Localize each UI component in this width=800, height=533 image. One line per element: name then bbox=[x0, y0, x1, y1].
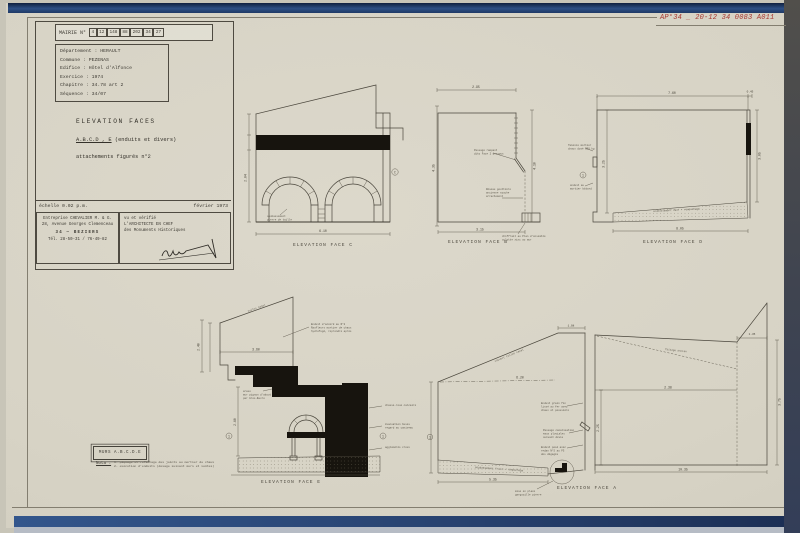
mairie-cell: 202 bbox=[130, 28, 143, 37]
mairie-cell: 27 bbox=[153, 28, 163, 37]
face-e-note: évacuation buses bbox=[385, 422, 410, 426]
nota-label: Nota : bbox=[96, 462, 111, 466]
subject-attachements: attachements figurés n°2 bbox=[76, 154, 226, 160]
face-b-note: Réseau gouttière bbox=[486, 187, 511, 191]
face-d-note: chaux dosé 350 kg bbox=[568, 146, 595, 150]
face-a-slope-note: couvert tuiles canal bbox=[494, 347, 525, 363]
face-e-note: hydrofugé, reprendre après bbox=[311, 329, 352, 333]
face-e-note: chasse-roue calcaire bbox=[385, 403, 417, 407]
contractor-phone: Tél. 28-50-31 / 76-49-82 bbox=[39, 237, 116, 243]
date-label: février 1973 bbox=[193, 204, 228, 209]
sheet-border-bottom bbox=[12, 507, 784, 508]
info-sequence: Séquence : 34/07 bbox=[60, 91, 164, 100]
face-a-bottomleft-dim: 5.35 bbox=[489, 478, 497, 482]
nota-line: 2- exécution d'enduits (dosage suivant m… bbox=[114, 464, 222, 468]
info-departement: Département : HERAULT bbox=[60, 48, 164, 57]
face-e-note: par Gros-Œuvre bbox=[243, 397, 265, 400]
face-e-note: Raufleurs mortier de chaux bbox=[311, 325, 352, 329]
face-b-bottom-dim: 3.15 bbox=[476, 228, 484, 232]
face-e-note: regard au caniveau bbox=[385, 425, 413, 429]
murs-label: MURS A.B.C.D.E bbox=[99, 451, 141, 455]
face-e-left-dim: 2.40 bbox=[197, 343, 201, 351]
face-d-top-dim: 7.60 bbox=[668, 91, 676, 95]
face-a-detail-note: gargouille pierre bbox=[515, 492, 542, 496]
project-info-box: Département : HERAULT Commune : PEZENAS … bbox=[55, 44, 169, 102]
scale-label: échelle 0.02 p.m. bbox=[39, 204, 88, 209]
sheet-border-top bbox=[27, 17, 657, 18]
face-b-geometry bbox=[435, 88, 540, 234]
sheet-border-left bbox=[27, 17, 28, 507]
face-b-note: ancienne souche bbox=[486, 190, 510, 194]
murs-label-box: MURS A.B.C.D.E bbox=[93, 446, 147, 460]
face-c-note: pierre de taille bbox=[267, 217, 292, 221]
face-c-height-dim: 2.04 bbox=[244, 174, 248, 182]
face-b-top-dim: 2.95 bbox=[472, 85, 480, 89]
face-a-detail-note: mise en place bbox=[515, 489, 536, 493]
top-blue-binding-bar bbox=[8, 3, 784, 13]
face-a-geometry bbox=[427, 303, 779, 489]
face-d-geometry bbox=[580, 94, 759, 233]
face-a-note: Passage canalisation bbox=[543, 428, 575, 432]
mairie-cell: 88 bbox=[120, 28, 130, 37]
face-a-note: eaux pluviales bbox=[543, 431, 565, 435]
face-a-note: Enduit posé avec bbox=[541, 445, 566, 449]
face-e-note: mur pignon d'about bbox=[243, 392, 271, 396]
subject-faces: A.B.C.D , E (enduits et divers) bbox=[76, 137, 226, 143]
drawing-subject: ELEVATION FACES A.B.C.D , E (enduits et … bbox=[76, 118, 226, 160]
info-chapitre: Chapitre : 34.78 art 2 bbox=[60, 82, 164, 91]
face-d-note: enduit au bbox=[570, 183, 584, 187]
face-a-wall-dim: 2.25 bbox=[596, 424, 600, 432]
face-b-caption: ELEVATION FACE B bbox=[448, 239, 508, 245]
faces-list: A.B.C.D , E bbox=[76, 137, 112, 143]
face-b-note: arrachement bbox=[486, 194, 504, 198]
face-a-mid-dim: 2.38 bbox=[664, 386, 672, 390]
face-d-circle-mark: 1 bbox=[582, 173, 584, 177]
face-b-note: dito Face 2 dessous bbox=[474, 151, 504, 155]
mairie-number-cells: 4 12 148 88 202 34 27 bbox=[89, 28, 164, 37]
face-e-width-dim: 3.60 bbox=[252, 348, 260, 352]
face-e-note: agglomérés creux bbox=[385, 445, 410, 449]
face-c-note: soubassement bbox=[267, 214, 286, 218]
face-e-wall-dim: 2.60 bbox=[233, 418, 237, 426]
face-e-geometry bbox=[200, 297, 386, 477]
face-a-note: suivant devis bbox=[543, 435, 564, 439]
elevation-face-b-drawing: 2.95 4.35 4.10 3.15 Passage rampant dito… bbox=[430, 80, 570, 255]
subject-title: ELEVATION FACES bbox=[76, 118, 226, 125]
scale-date-row: échelle 0.02 p.m. février 1973 bbox=[36, 200, 231, 212]
face-b-right-dim: 4.10 bbox=[533, 162, 537, 170]
face-a-note: des dégagés bbox=[541, 452, 559, 456]
face-a-flat-dim: 1.08 bbox=[568, 325, 575, 328]
face-d-note: faïence mortier bbox=[568, 143, 592, 147]
info-exercice: Exercice : 1974 bbox=[60, 74, 164, 83]
face-c-caption: ELEVATION FACE C bbox=[293, 242, 353, 248]
face-a-roof-label: faîtage ancien bbox=[665, 347, 688, 353]
contractor-address: 28, Avenue Georges Clemenceau bbox=[39, 222, 116, 228]
face-a-topright-dim: 1.35 bbox=[749, 333, 756, 336]
red-ref-underline bbox=[656, 25, 786, 26]
face-a-circle-mark: 1 bbox=[429, 435, 431, 439]
face-a-right-dim: 3.75 bbox=[778, 398, 782, 406]
face-e-caption: ELEVATION FACE E bbox=[261, 479, 321, 485]
contractor-box: Entreprise CHEVALIER M. & G. 28, Avenue … bbox=[36, 212, 119, 264]
bottom-photo-edge bbox=[14, 527, 800, 533]
face-b-note: chiffrait au Plan d'ensemble bbox=[502, 234, 546, 238]
face-a-caption: ELEVATION FACE A bbox=[557, 485, 617, 491]
face-e-circle-mark-left: 1 bbox=[228, 434, 230, 438]
mairie-cell: 12 bbox=[97, 28, 107, 37]
face-a-bottom-dim: 10.35 bbox=[678, 468, 688, 472]
face-c-circle-mark: C bbox=[394, 170, 396, 174]
elevation-face-a-drawing: 1.08 6.20 2.38 3.75 1.35 10.35 5.35 2.25… bbox=[425, 300, 790, 505]
face-a-note: chaux et poussière bbox=[541, 408, 569, 412]
face-d-top-dim2: 0.45 bbox=[747, 91, 754, 94]
face-d-note: mortier bâtard bbox=[570, 186, 592, 190]
mairie-cell: 148 bbox=[107, 28, 120, 37]
mairie-label: MAIRIE N° bbox=[59, 30, 86, 36]
architect-verification-box: vu et vérifié L'ARCHITECTE EN CHEF des M… bbox=[119, 212, 231, 264]
elevation-face-d-drawing: 7.60 0.45 3.25 3.05 8.05 soubassement ne… bbox=[565, 86, 785, 254]
face-d-bottom-dim: 8.05 bbox=[676, 227, 684, 231]
face-b-left-dim: 4.35 bbox=[432, 164, 436, 172]
info-commune: Commune : PEZENAS bbox=[60, 57, 164, 66]
verif-line: des Monuments Historiques bbox=[124, 228, 226, 234]
scanned-drawing-sheet: AP°34 _ 20-12 34 0083 A011 MAIRIE N° 4 1… bbox=[0, 0, 800, 533]
face-c-geometry bbox=[247, 85, 403, 236]
face-e-circle-mark-right: 1 bbox=[382, 434, 384, 438]
face-d-right-dim: 3.05 bbox=[758, 152, 762, 160]
mairie-cell: 34 bbox=[143, 28, 153, 37]
face-a-note: lissé au fer avec bbox=[541, 404, 568, 408]
face-a-note: redan N°5 au FG bbox=[541, 448, 565, 452]
face-c-width-dim: 6.10 bbox=[319, 229, 327, 233]
face-d-left-dim: 3.25 bbox=[602, 160, 606, 168]
nota-notes: 1- piquage et refichage des joints au mo… bbox=[114, 460, 222, 468]
elevation-face-e-drawing: 3.60 2.40 2.60 tuiles canal 1 1 Enduit d… bbox=[193, 292, 433, 492]
faces-suffix: (enduits et divers) bbox=[112, 137, 177, 143]
mairie-cell: 4 bbox=[89, 28, 97, 37]
info-edifice: Edifice : Hôtel d'Alfonce bbox=[60, 65, 164, 74]
face-a-note: Enduit grain fin bbox=[541, 401, 566, 405]
face-a-dash-dim: 6.20 bbox=[516, 376, 524, 380]
signature bbox=[156, 235, 228, 263]
face-e-note: Enduit d'accord au N°2 bbox=[311, 322, 346, 326]
elevation-face-c-drawing: 6.10 2.04 C soubassement pierre de taill… bbox=[243, 78, 443, 253]
face-d-caption: ELEVATION FACE D bbox=[643, 239, 703, 245]
archive-reference-handwritten: AP°34 _ 20-12 34 0083 A011 bbox=[660, 14, 786, 22]
mairie-number-header: MAIRIE N° 4 12 148 88 202 34 27 bbox=[55, 24, 213, 41]
